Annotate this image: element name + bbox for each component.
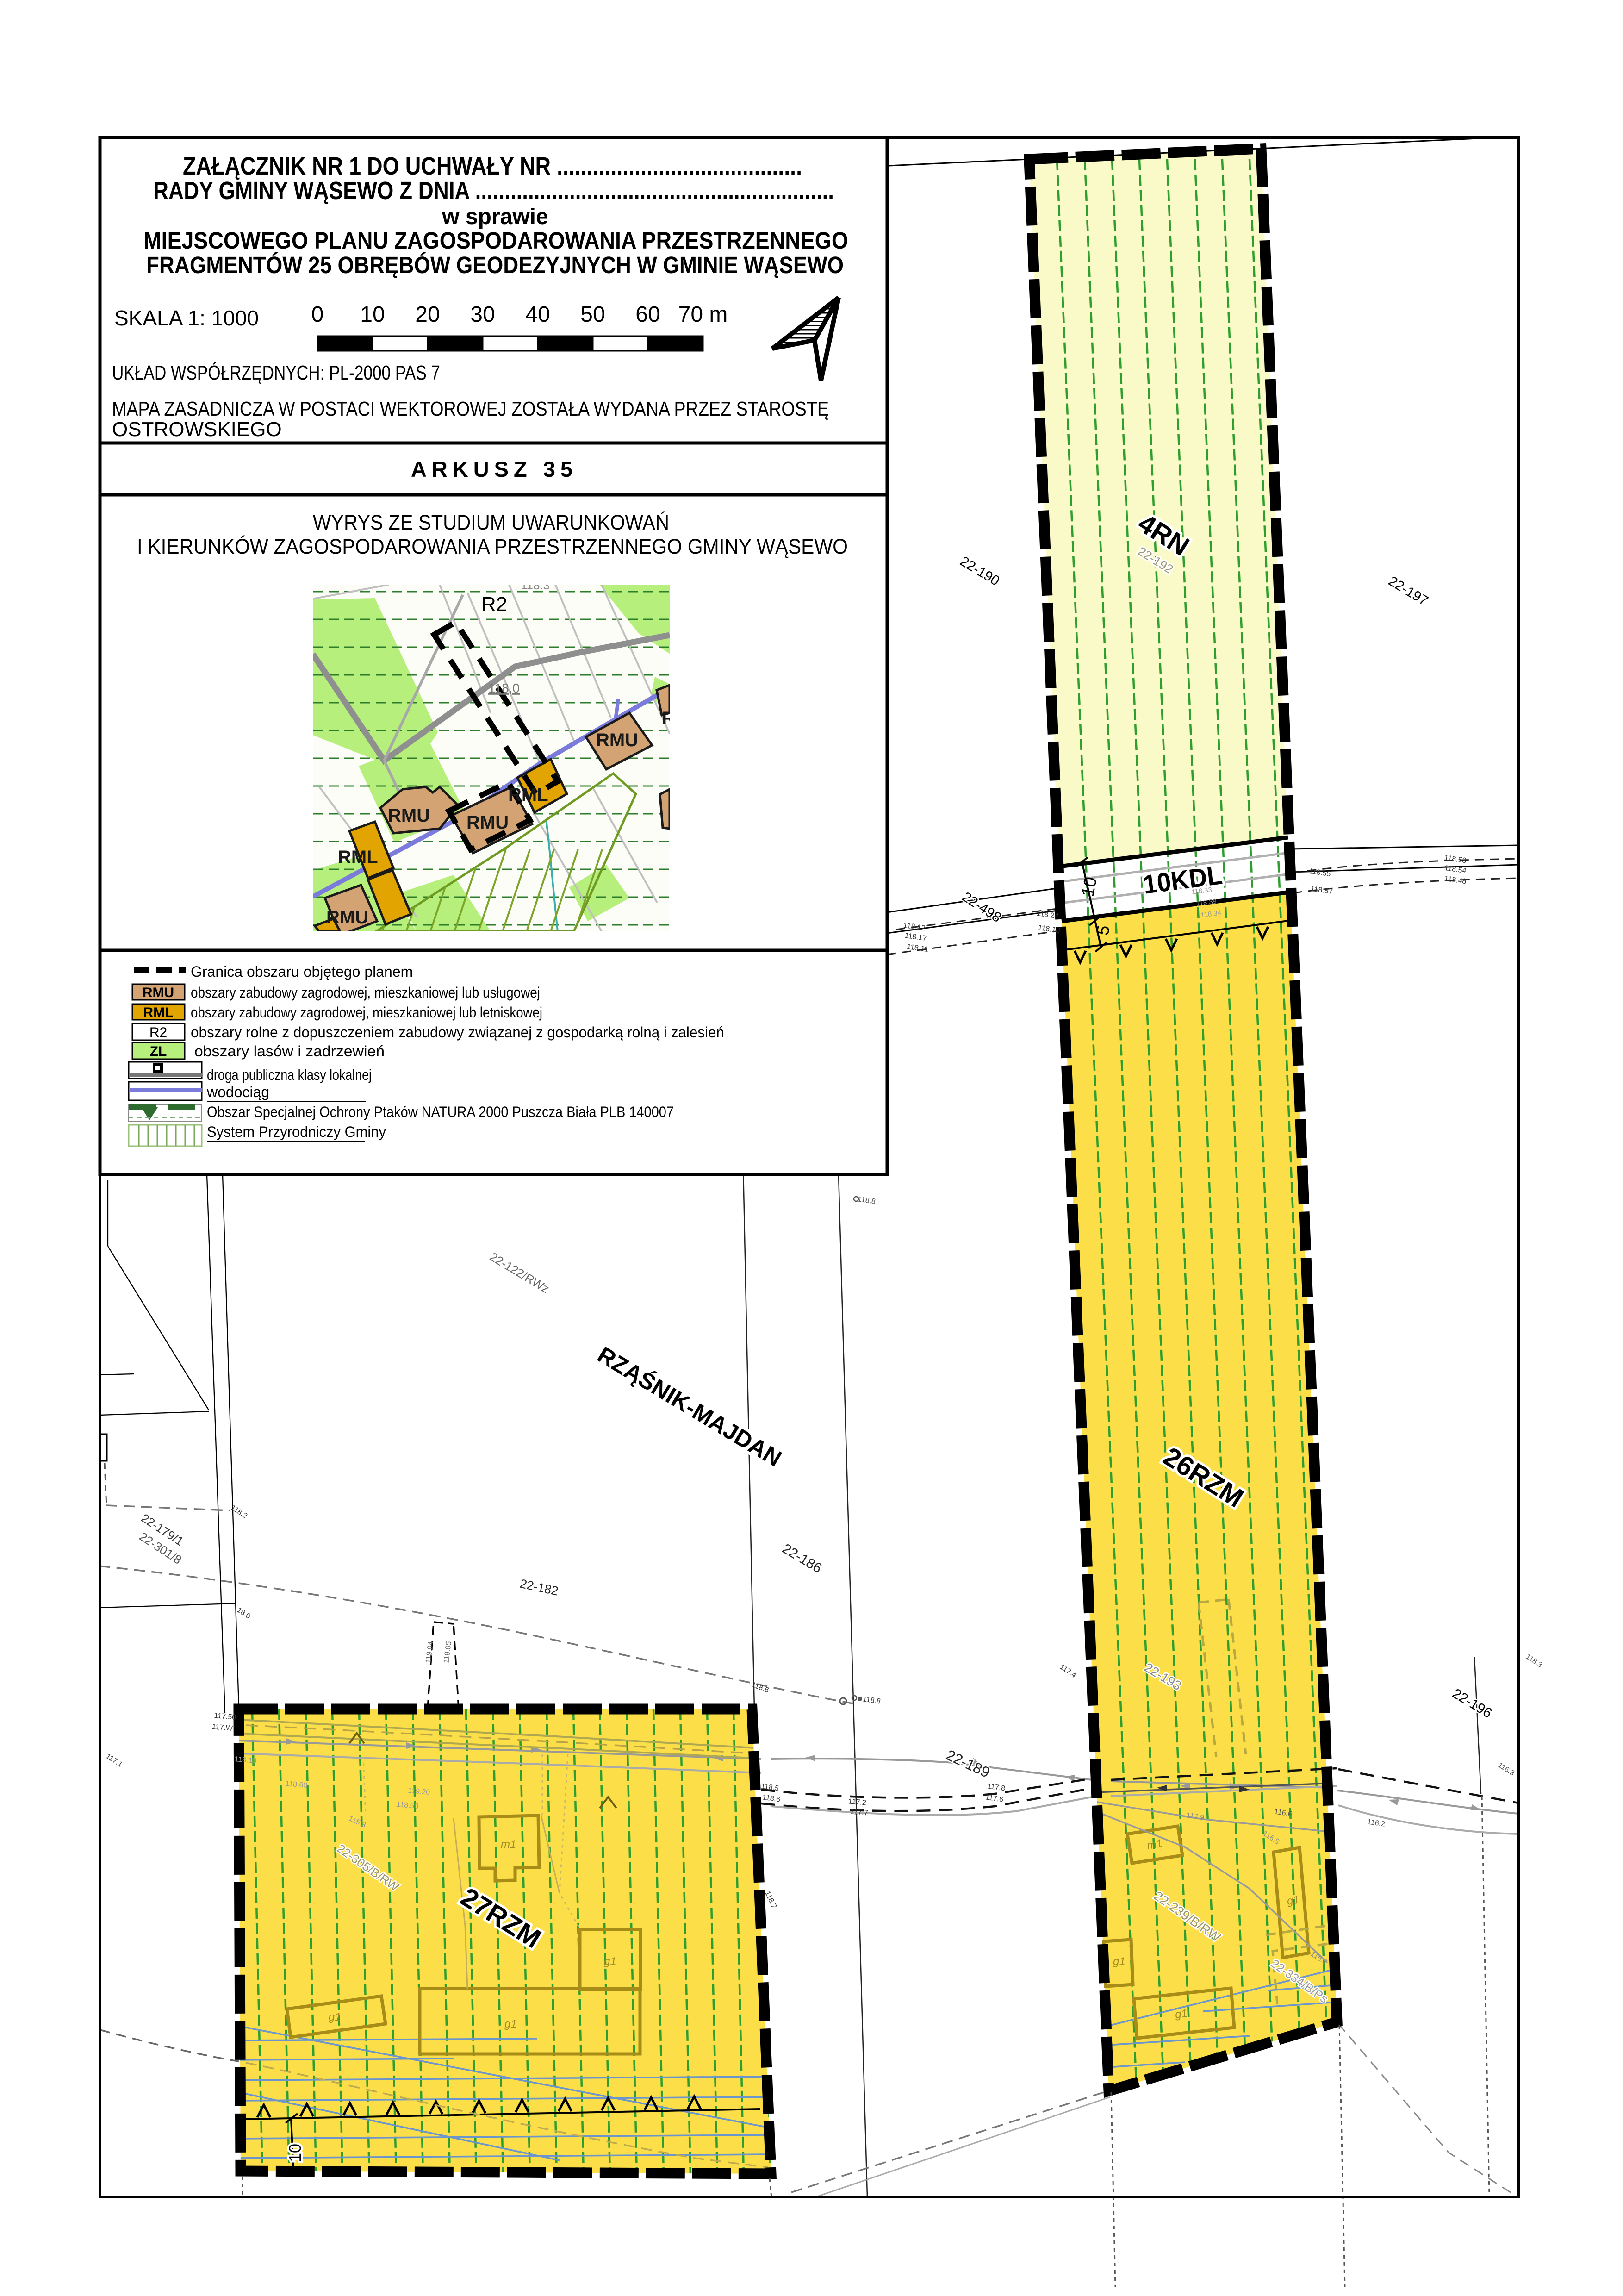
svg-text:SKALA 1: 1000: SKALA 1: 1000 — [114, 306, 259, 330]
svg-text:10: 10 — [286, 2144, 305, 2162]
svg-text:118,0: 118,0 — [488, 681, 520, 695]
svg-text:60: 60 — [635, 302, 660, 327]
svg-text:RML: RML — [338, 847, 378, 867]
svg-text:10: 10 — [360, 302, 385, 327]
svg-text:MAPA ZASADNICZA W POSTACI WEKT: MAPA ZASADNICZA W POSTACI WEKTOROWEJ ZOS… — [112, 398, 829, 420]
svg-text:RMU: RMU — [326, 907, 368, 928]
svg-text:70 m: 70 m — [678, 302, 728, 327]
svg-text:10: 10 — [1078, 875, 1101, 898]
svg-text:20: 20 — [415, 302, 440, 327]
svg-text:Obszar Specjalnej Ochrony Ptak: Obszar Specjalnej Ochrony Ptaków NATURA … — [207, 1104, 674, 1120]
svg-text:obszary rolne z dopuszczeniem: obszary rolne z dopuszczeniem zabudowy z… — [191, 1024, 724, 1041]
svg-text:Granica obszaru objętego plane: Granica obszaru objętego planem — [191, 963, 413, 980]
svg-text:RML: RML — [508, 785, 548, 805]
svg-text:System Przyrodniczy Gminy: System Przyrodniczy Gminy — [207, 1123, 386, 1140]
svg-text:g1: g1 — [1174, 2007, 1188, 2021]
svg-text:FRAGMENTÓW 25 OBRĘBÓW GEODEZYJ: FRAGMENTÓW 25 OBRĘBÓW GEODEZYJNYCH W GMI… — [146, 252, 844, 278]
svg-text:g1: g1 — [1113, 1955, 1126, 1968]
svg-text:RMU: RMU — [143, 985, 174, 1000]
svg-text:117.7: 117.7 — [850, 1808, 868, 1817]
svg-text:ZAŁĄCZNIK NR 1 DO UCHWAŁY NR .: ZAŁĄCZNIK NR 1 DO UCHWAŁY NR ...........… — [183, 152, 802, 180]
svg-text:0: 0 — [311, 302, 324, 327]
svg-text:30: 30 — [470, 302, 495, 327]
svg-text:RADY GMINY WĄSEWO Z DNIA .....: RADY GMINY WĄSEWO Z DNIA ...............… — [153, 177, 834, 205]
svg-text:droga publiczna klasy lokalnej: droga publiczna klasy lokalnej — [207, 1067, 372, 1083]
svg-text:ZL: ZL — [150, 1044, 167, 1059]
svg-text:RMU: RMU — [388, 805, 430, 826]
svg-text:RMU: RMU — [596, 730, 638, 750]
svg-text:w sprawie: w sprawie — [442, 205, 548, 229]
svg-text:RML: RML — [143, 1005, 174, 1020]
svg-text:wodociąg: wodociąg — [206, 1084, 269, 1100]
svg-text:obszary lasów i zadrzewień: obszary lasów i zadrzewień — [194, 1043, 385, 1060]
svg-text:R2: R2 — [481, 593, 507, 616]
svg-text:obszary zabudowy zagrodowej, m: obszary zabudowy zagrodowej, mieszkaniow… — [191, 1004, 542, 1021]
svg-text:m1: m1 — [501, 1838, 516, 1851]
svg-text:obszary zabudowy zagrodowej, m: obszary zabudowy zagrodowej, mieszkaniow… — [191, 984, 540, 1001]
svg-text:R2: R2 — [149, 1025, 167, 1040]
svg-text:ARKUSZ 35: ARKUSZ 35 — [411, 457, 578, 481]
svg-text:MIEJSCOWEGO PLANU ZAGOSPODAROW: MIEJSCOWEGO PLANU ZAGOSPODAROWANIA PRZES… — [143, 227, 848, 254]
svg-text:UKŁAD WSPÓŁRZĘDNYCH: PL-2000 P: UKŁAD WSPÓŁRZĘDNYCH: PL-2000 PAS 7 — [112, 362, 440, 384]
svg-text:g1: g1 — [329, 2011, 341, 2023]
svg-text:OSTROWSKIEGO: OSTROWSKIEGO — [112, 418, 282, 441]
svg-text:I KIERUNKÓW ZAGOSPODAROWANIA P: I KIERUNKÓW ZAGOSPODAROWANIA PRZESTRZENN… — [137, 535, 848, 558]
svg-text:g1: g1 — [1286, 1893, 1300, 1907]
svg-text:RMU: RMU — [466, 812, 509, 833]
svg-text:g1: g1 — [604, 1955, 616, 1968]
svg-text:117.2: 117.2 — [848, 1797, 866, 1807]
svg-text:WYRYS ZE STUDIUM UWARUNKOWAŃ: WYRYS ZE STUDIUM UWARUNKOWAŃ — [313, 511, 669, 534]
svg-text:50: 50 — [580, 302, 605, 327]
svg-text:40: 40 — [525, 302, 550, 327]
svg-text:m1: m1 — [1146, 1837, 1163, 1852]
svg-text:g1: g1 — [504, 2018, 517, 2030]
